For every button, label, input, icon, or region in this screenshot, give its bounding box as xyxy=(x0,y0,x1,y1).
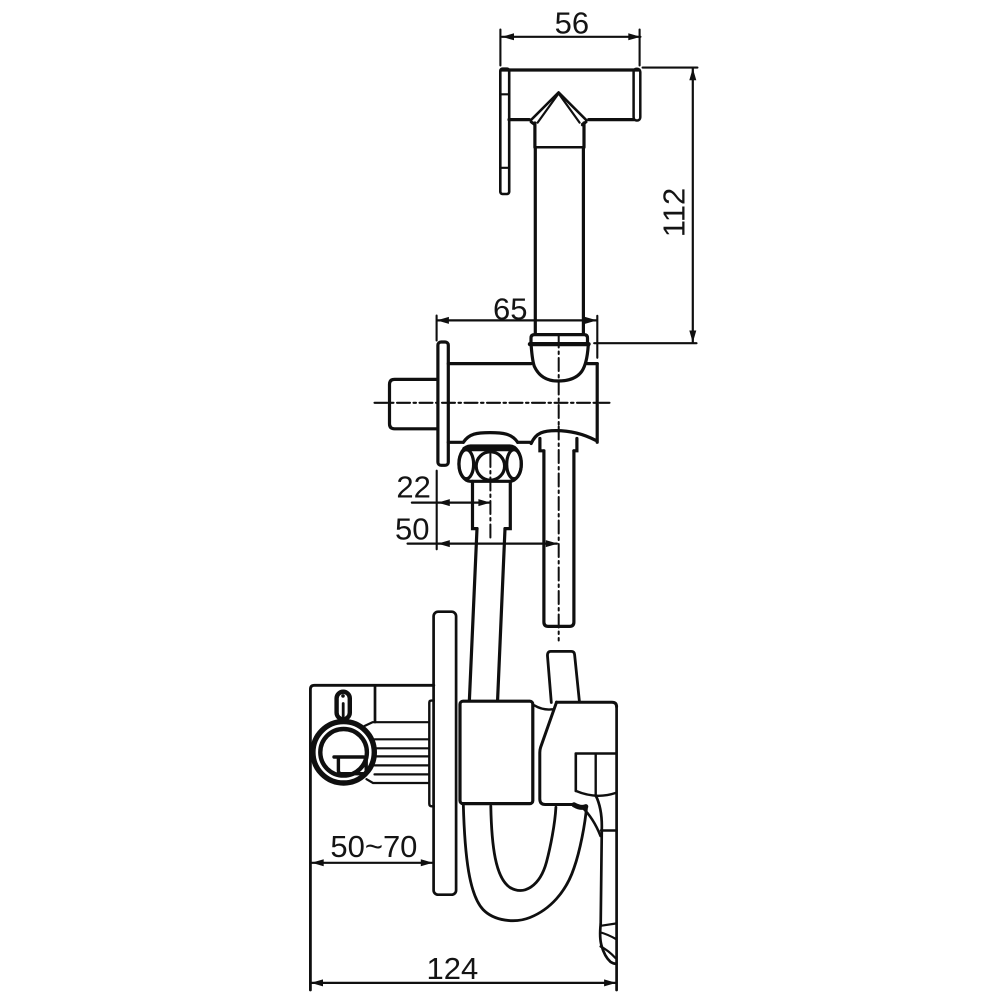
svg-text:124: 124 xyxy=(427,951,479,986)
svg-text:65: 65 xyxy=(493,291,527,326)
svg-text:50~70: 50~70 xyxy=(330,829,417,864)
svg-text:22: 22 xyxy=(396,470,430,505)
svg-text:56: 56 xyxy=(555,5,589,40)
svg-text:50: 50 xyxy=(395,511,429,546)
svg-text:112: 112 xyxy=(656,188,691,237)
